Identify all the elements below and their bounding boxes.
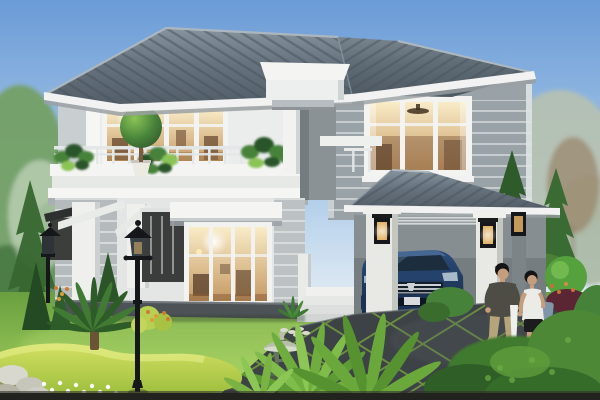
rendering-canvas xyxy=(0,0,600,400)
license-plate xyxy=(404,297,420,305)
bottom-strip xyxy=(0,393,600,400)
stair-railing xyxy=(344,150,372,172)
pillar-lantern-right xyxy=(478,218,498,248)
bottom-hairline xyxy=(0,391,600,393)
living-room-window xyxy=(184,222,272,306)
house-exterior-rendering: Architectural rendering of a modern two-… xyxy=(0,0,600,400)
wall-lanterns xyxy=(511,212,526,236)
pillar-lantern-left xyxy=(372,214,392,244)
headlight-right xyxy=(442,272,458,281)
